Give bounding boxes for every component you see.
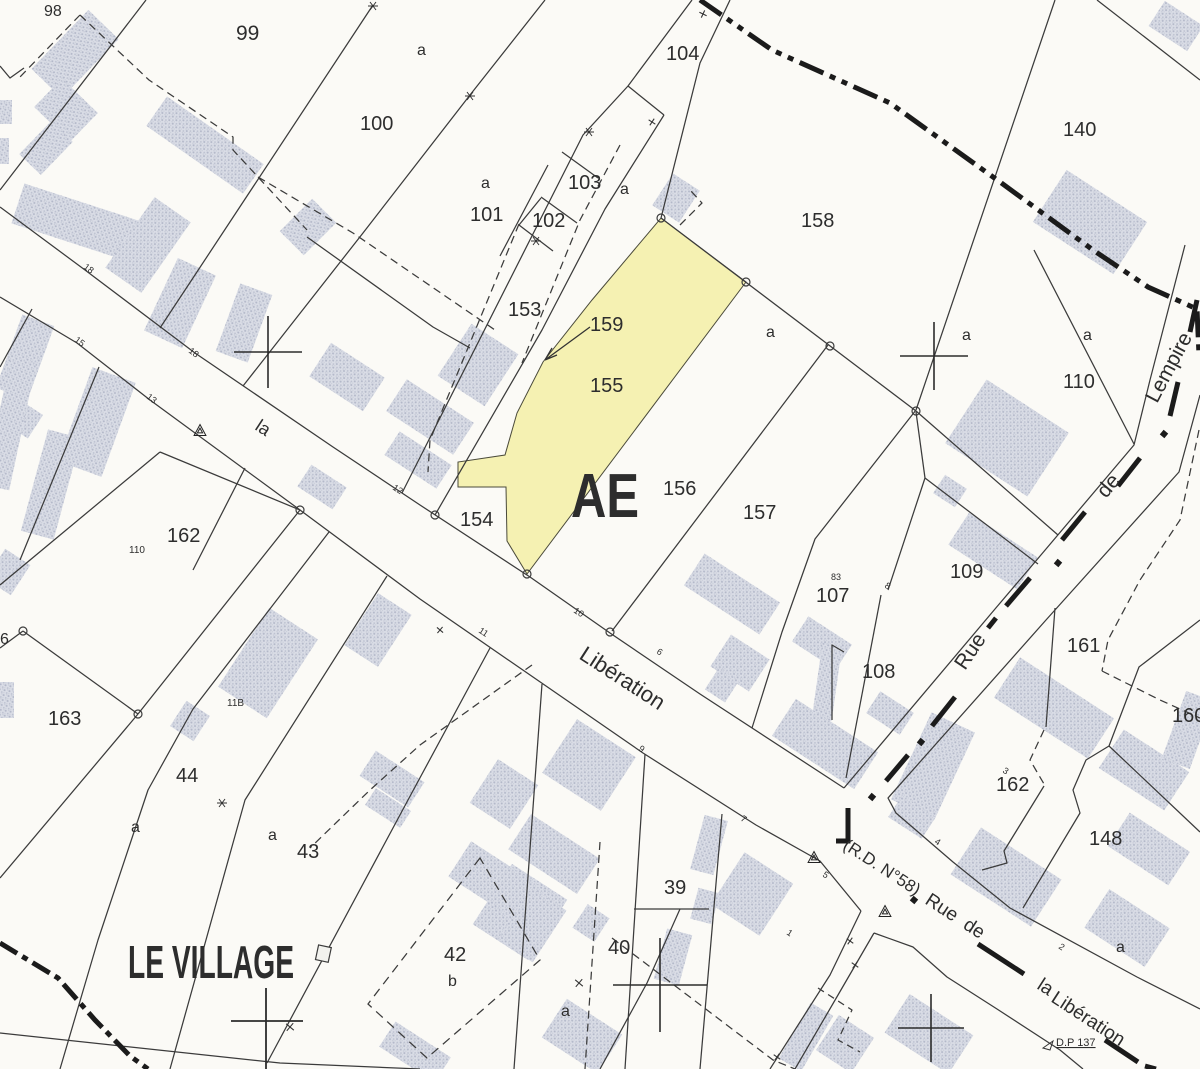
svg-text:159: 159	[590, 314, 623, 336]
svg-text:160: 160	[1172, 705, 1200, 727]
svg-text:a: a	[962, 327, 971, 344]
svg-text:162: 162	[167, 525, 200, 547]
svg-text:163: 163	[48, 708, 81, 730]
svg-text:101: 101	[470, 204, 503, 226]
svg-text:83: 83	[831, 572, 841, 582]
svg-text:LE VILLAGE: LE VILLAGE	[128, 936, 294, 988]
svg-text:AE: AE	[571, 462, 639, 531]
svg-text:153: 153	[508, 299, 541, 321]
svg-text:D.P 137: D.P 137	[1056, 1037, 1096, 1049]
svg-text:a: a	[620, 181, 629, 198]
svg-text:44: 44	[176, 765, 198, 787]
svg-text:157: 157	[743, 502, 776, 524]
svg-text:a: a	[766, 324, 775, 341]
svg-text:a: a	[1083, 327, 1092, 344]
svg-text:108: 108	[862, 661, 895, 683]
svg-text:42: 42	[444, 944, 466, 966]
svg-text:a: a	[1116, 939, 1125, 956]
svg-text:6: 6	[0, 631, 9, 648]
svg-text:a: a	[417, 42, 426, 59]
svg-text:43: 43	[297, 841, 319, 863]
svg-text:11B: 11B	[227, 698, 244, 709]
svg-text:39: 39	[664, 877, 686, 899]
svg-text:148: 148	[1089, 828, 1122, 850]
svg-text:110: 110	[1063, 371, 1095, 393]
svg-text:a: a	[561, 1003, 570, 1020]
svg-text:b: b	[448, 973, 457, 990]
svg-text:161: 161	[1067, 635, 1100, 657]
svg-text:103: 103	[568, 172, 601, 194]
svg-text:158: 158	[801, 210, 834, 232]
svg-text:a: a	[268, 827, 277, 844]
svg-text:98: 98	[44, 3, 62, 20]
svg-text:104: 104	[666, 43, 699, 65]
svg-text:140: 140	[1063, 119, 1096, 141]
svg-text:162: 162	[996, 774, 1029, 796]
svg-text:155: 155	[590, 375, 623, 397]
svg-text:110: 110	[129, 545, 145, 556]
svg-text:99: 99	[236, 22, 259, 45]
svg-text:a: a	[481, 175, 490, 192]
svg-text:156: 156	[663, 478, 696, 500]
svg-text:40: 40	[608, 937, 630, 959]
svg-text:154: 154	[460, 509, 493, 531]
svg-text:100: 100	[360, 113, 393, 135]
svg-text:107: 107	[816, 585, 849, 607]
svg-text:109: 109	[950, 561, 983, 583]
svg-text:a: a	[131, 819, 140, 836]
svg-text:102: 102	[532, 210, 565, 232]
